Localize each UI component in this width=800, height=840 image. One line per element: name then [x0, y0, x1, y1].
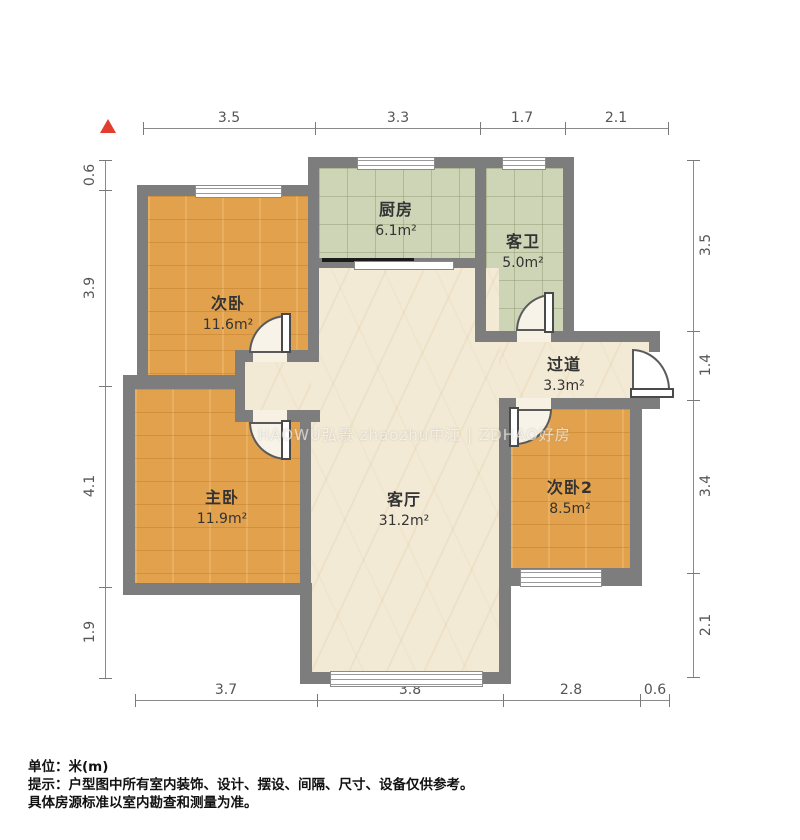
- dim-tick: [317, 694, 318, 707]
- window: [357, 157, 435, 170]
- wall-segment: [137, 185, 148, 384]
- dim-tick: [668, 122, 669, 135]
- wall-segment: [300, 583, 312, 684]
- dim-tick: [99, 386, 112, 387]
- dim-tick: [143, 122, 144, 135]
- wall-segment: [123, 375, 235, 389]
- dim-tick: [99, 587, 112, 588]
- window: [330, 671, 483, 687]
- room-name: 客厅: [379, 486, 429, 510]
- dim-tick: [99, 160, 112, 161]
- wall-segment: [300, 422, 311, 583]
- dim-label: 3.5: [204, 110, 254, 126]
- door-opening: [516, 398, 551, 409]
- dim-label: 3.7: [201, 682, 251, 698]
- kitchen-slider-panel: [354, 261, 454, 270]
- wall-segment: [563, 157, 574, 342]
- dim-line-right: [693, 160, 694, 677]
- dim-label: 3.4: [698, 464, 714, 508]
- room-area: 3.3m²: [543, 378, 585, 394]
- wall-segment: [123, 375, 135, 595]
- door-leaf: [544, 292, 554, 333]
- room-label-kitchen: 厨房 6.1m²: [375, 196, 417, 239]
- wall-segment: [649, 331, 660, 352]
- wall-segment: [123, 583, 312, 595]
- dim-tick: [687, 160, 700, 161]
- dim-label: 2.1: [591, 110, 641, 126]
- room-area: 8.5m²: [547, 501, 593, 517]
- room-name: 次卧: [203, 290, 253, 314]
- dim-label: 2.1: [698, 603, 714, 647]
- note-tip: 提示：户型图中所有室内装饰、设计、摆设、间隔、尺寸、设备仅供参考。: [28, 778, 474, 794]
- room-label-bath-guest: 客卫 5.0m²: [502, 228, 544, 271]
- floor-vestibule: [245, 362, 311, 410]
- dim-label: 2.8: [546, 682, 596, 698]
- dim-label: 4.1: [82, 464, 98, 508]
- window: [520, 569, 602, 587]
- door-leaf: [281, 313, 291, 353]
- note-tip2: 具体房源标准以室内勘查和测量为准。: [28, 796, 474, 812]
- dim-label: 0.6: [630, 682, 680, 698]
- room-area: 11.9m²: [197, 511, 247, 527]
- dim-line-top: [143, 128, 668, 129]
- dim-label: 1.7: [497, 110, 547, 126]
- dim-label: 3.5: [698, 223, 714, 267]
- floorplan-canvas: 3.5 3.3 1.7 2.1 0.6 3.9 4.1 1.9 3.5 1.4 …: [0, 0, 800, 840]
- dim-label: 1.4: [698, 343, 714, 387]
- dim-tick: [315, 122, 316, 135]
- dim-line-bottom: [135, 700, 669, 701]
- dim-label: 3.9: [82, 266, 98, 310]
- north-arrow-icon: [100, 119, 116, 133]
- dim-tick: [565, 122, 566, 135]
- dim-label: 1.9: [82, 610, 98, 654]
- room-label-hallway: 过道 3.3m²: [543, 351, 585, 394]
- room-area: 11.6m²: [203, 317, 253, 333]
- dim-tick: [503, 694, 504, 707]
- room-area: 5.0m²: [502, 255, 544, 271]
- dim-tick: [687, 677, 700, 678]
- room-label-bedroom-master: 主卧 11.9m²: [197, 484, 247, 527]
- dim-tick: [480, 122, 481, 135]
- note-unit: 单位：米(m): [28, 760, 474, 776]
- wall-segment: [475, 157, 486, 341]
- room-name: 客卫: [502, 228, 544, 252]
- window: [502, 157, 546, 170]
- watermark-text: HAOWU弘景·zhaozhu中江 | ZDHAO好房: [258, 424, 571, 445]
- room-name: 次卧2: [547, 474, 593, 498]
- dim-tick: [99, 678, 112, 679]
- room-name: 主卧: [197, 484, 247, 508]
- floor-bedroom-secondary: [148, 350, 235, 375]
- room-name: 厨房: [375, 196, 417, 220]
- room-area: 6.1m²: [375, 223, 417, 239]
- entry-door-swing-arc: [632, 349, 670, 390]
- room-label-living-room: 客厅 31.2m²: [379, 486, 429, 529]
- dim-line-left: [105, 160, 106, 678]
- room-label-bedroom-secondary-2: 次卧2 8.5m²: [547, 474, 593, 517]
- room-label-bedroom-secondary: 次卧 11.6m²: [203, 290, 253, 333]
- floor-living-room: [311, 268, 499, 672]
- dim-tick: [99, 190, 112, 191]
- entry-door-leaf: [630, 388, 674, 398]
- dim-label: 3.3: [373, 110, 423, 126]
- room-area: 31.2m²: [379, 513, 429, 529]
- window: [195, 185, 282, 198]
- dim-tick: [687, 400, 700, 401]
- dim-tick: [135, 694, 136, 707]
- dim-tick: [687, 573, 700, 574]
- wall-segment: [475, 331, 660, 342]
- wall-segment: [630, 398, 642, 582]
- dim-tick: [687, 331, 700, 332]
- dim-label: 0.6: [82, 153, 98, 197]
- room-name: 过道: [543, 351, 585, 375]
- footer-notes: 单位：米(m) 提示：户型图中所有室内装饰、设计、摆设、间隔、尺寸、设备仅供参考…: [28, 760, 474, 814]
